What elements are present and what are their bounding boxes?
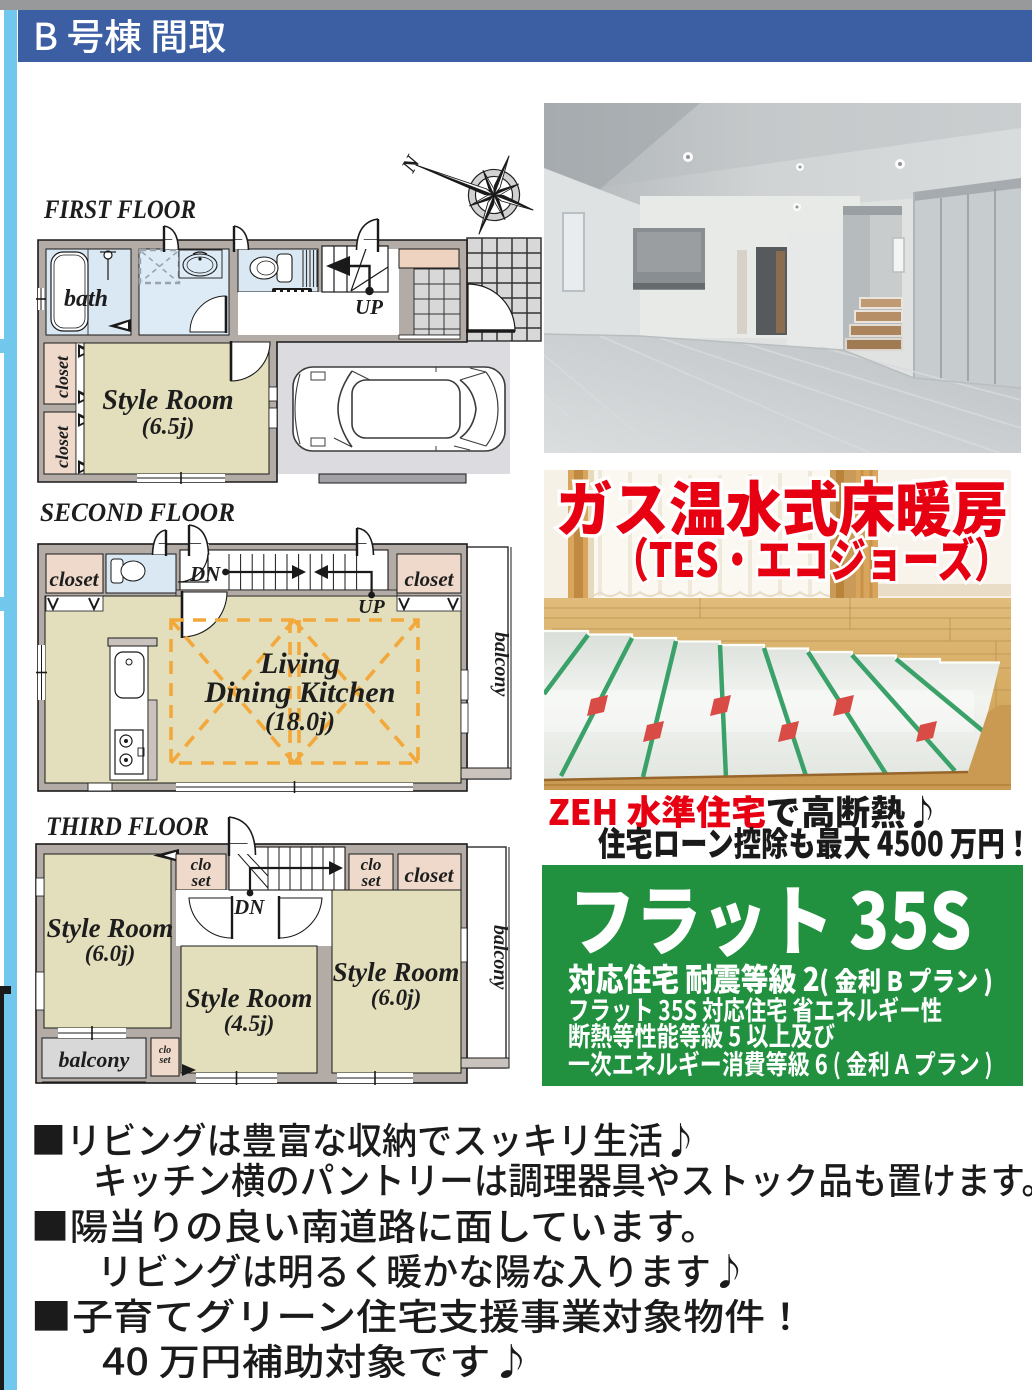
svg-text:closet: closet [52, 425, 72, 468]
svg-text:DN: DN [233, 895, 265, 919]
svg-text:Style Room: Style Room [102, 385, 233, 416]
svg-text:bath: bath [64, 286, 108, 312]
svg-text:UP: UP [355, 295, 383, 319]
svg-text:FIRST FLOOR: FIRST FLOOR [43, 195, 196, 224]
svg-text:balcony: balcony [490, 632, 512, 697]
svg-text:一次エネルギー消費等級 6 ( 金利 A プラン ): 一次エネルギー消費等級 6 ( 金利 A プラン ) [568, 1043, 993, 1082]
svg-text:balcony: balcony [59, 1047, 130, 1072]
svg-text:住宅ローン控除も最大 4500 万円！: 住宅ローン控除も最大 4500 万円！ [598, 817, 1032, 866]
svg-text:Style Room: Style Room [47, 913, 174, 943]
svg-text:THIRD FLOOR: THIRD FLOOR [46, 812, 209, 841]
svg-text:（TES・エコジョーズ）: （TES・エコジョーズ） [612, 522, 1011, 591]
svg-text:(4.5j): (4.5j) [224, 1011, 274, 1036]
svg-text:set: set [158, 1055, 171, 1066]
svg-text:SECOND FLOOR: SECOND FLOOR [40, 498, 235, 527]
svg-text:closet: closet [405, 863, 455, 887]
svg-text:closet: closet [405, 567, 455, 591]
svg-text:set: set [361, 871, 382, 890]
svg-text:Dining Kitchen: Dining Kitchen [204, 676, 396, 709]
svg-text:UP: UP [358, 596, 385, 618]
svg-text:(18.0j): (18.0j) [265, 707, 335, 736]
svg-text:Style Room: Style Room [333, 957, 460, 987]
svg-text:DN: DN [189, 562, 221, 586]
svg-text:closet: closet [50, 567, 100, 591]
svg-text:balcony: balcony [489, 925, 511, 990]
svg-text:set: set [191, 871, 212, 890]
svg-text:40 万円補助対象です♪: 40 万円補助対象です♪ [102, 1332, 532, 1386]
svg-text:Style Room: Style Room [186, 983, 313, 1013]
svg-text:N: N [396, 150, 425, 177]
svg-text:B 号棟 間取: B 号棟 間取 [33, 7, 227, 61]
svg-text:closet: closet [52, 355, 72, 398]
svg-text:(6.0j): (6.0j) [371, 985, 421, 1010]
svg-text:(6.0j): (6.0j) [85, 941, 135, 966]
svg-text:(6.5j): (6.5j) [142, 414, 195, 440]
